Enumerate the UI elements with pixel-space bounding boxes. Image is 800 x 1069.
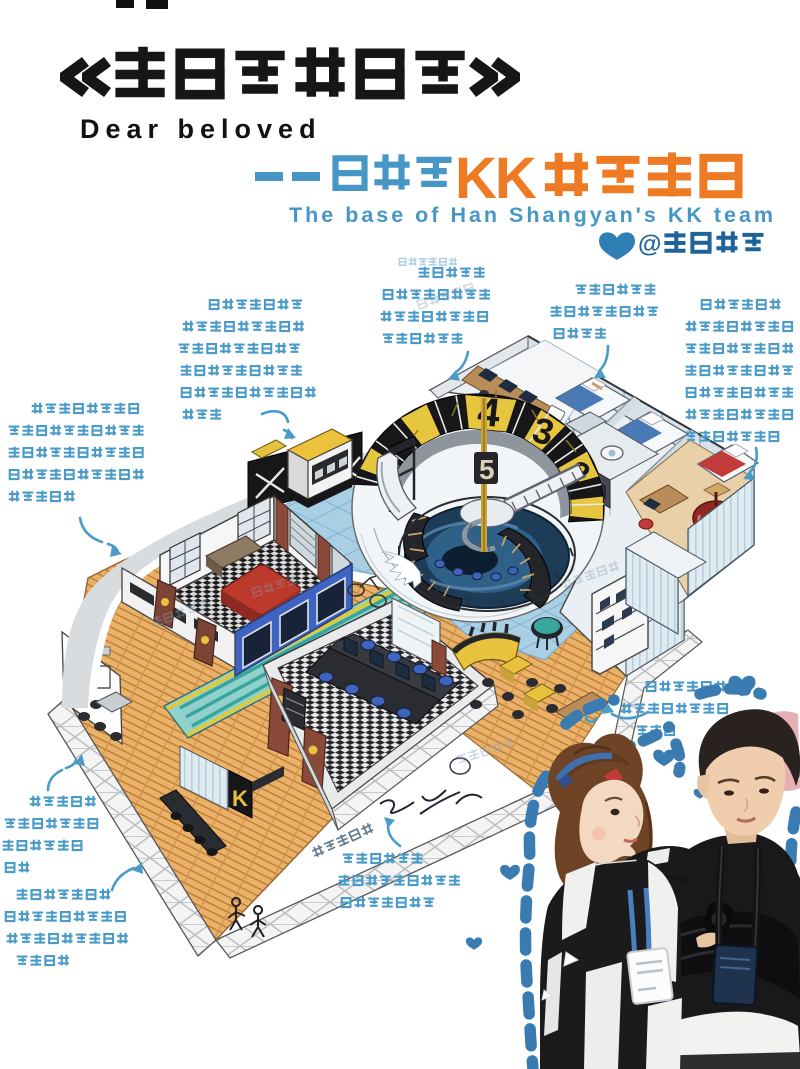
svg-text:The base of Han Shangyan's KK: The base of Han Shangyan's KK team [289,203,776,227]
svg-text:5: 5 [479,454,495,485]
svg-text:K: K [232,786,248,811]
svg-text:Dear beloved: Dear beloved [80,114,322,144]
svg-text:KK: KK [455,146,537,211]
svg-text:@: @ [638,231,661,258]
